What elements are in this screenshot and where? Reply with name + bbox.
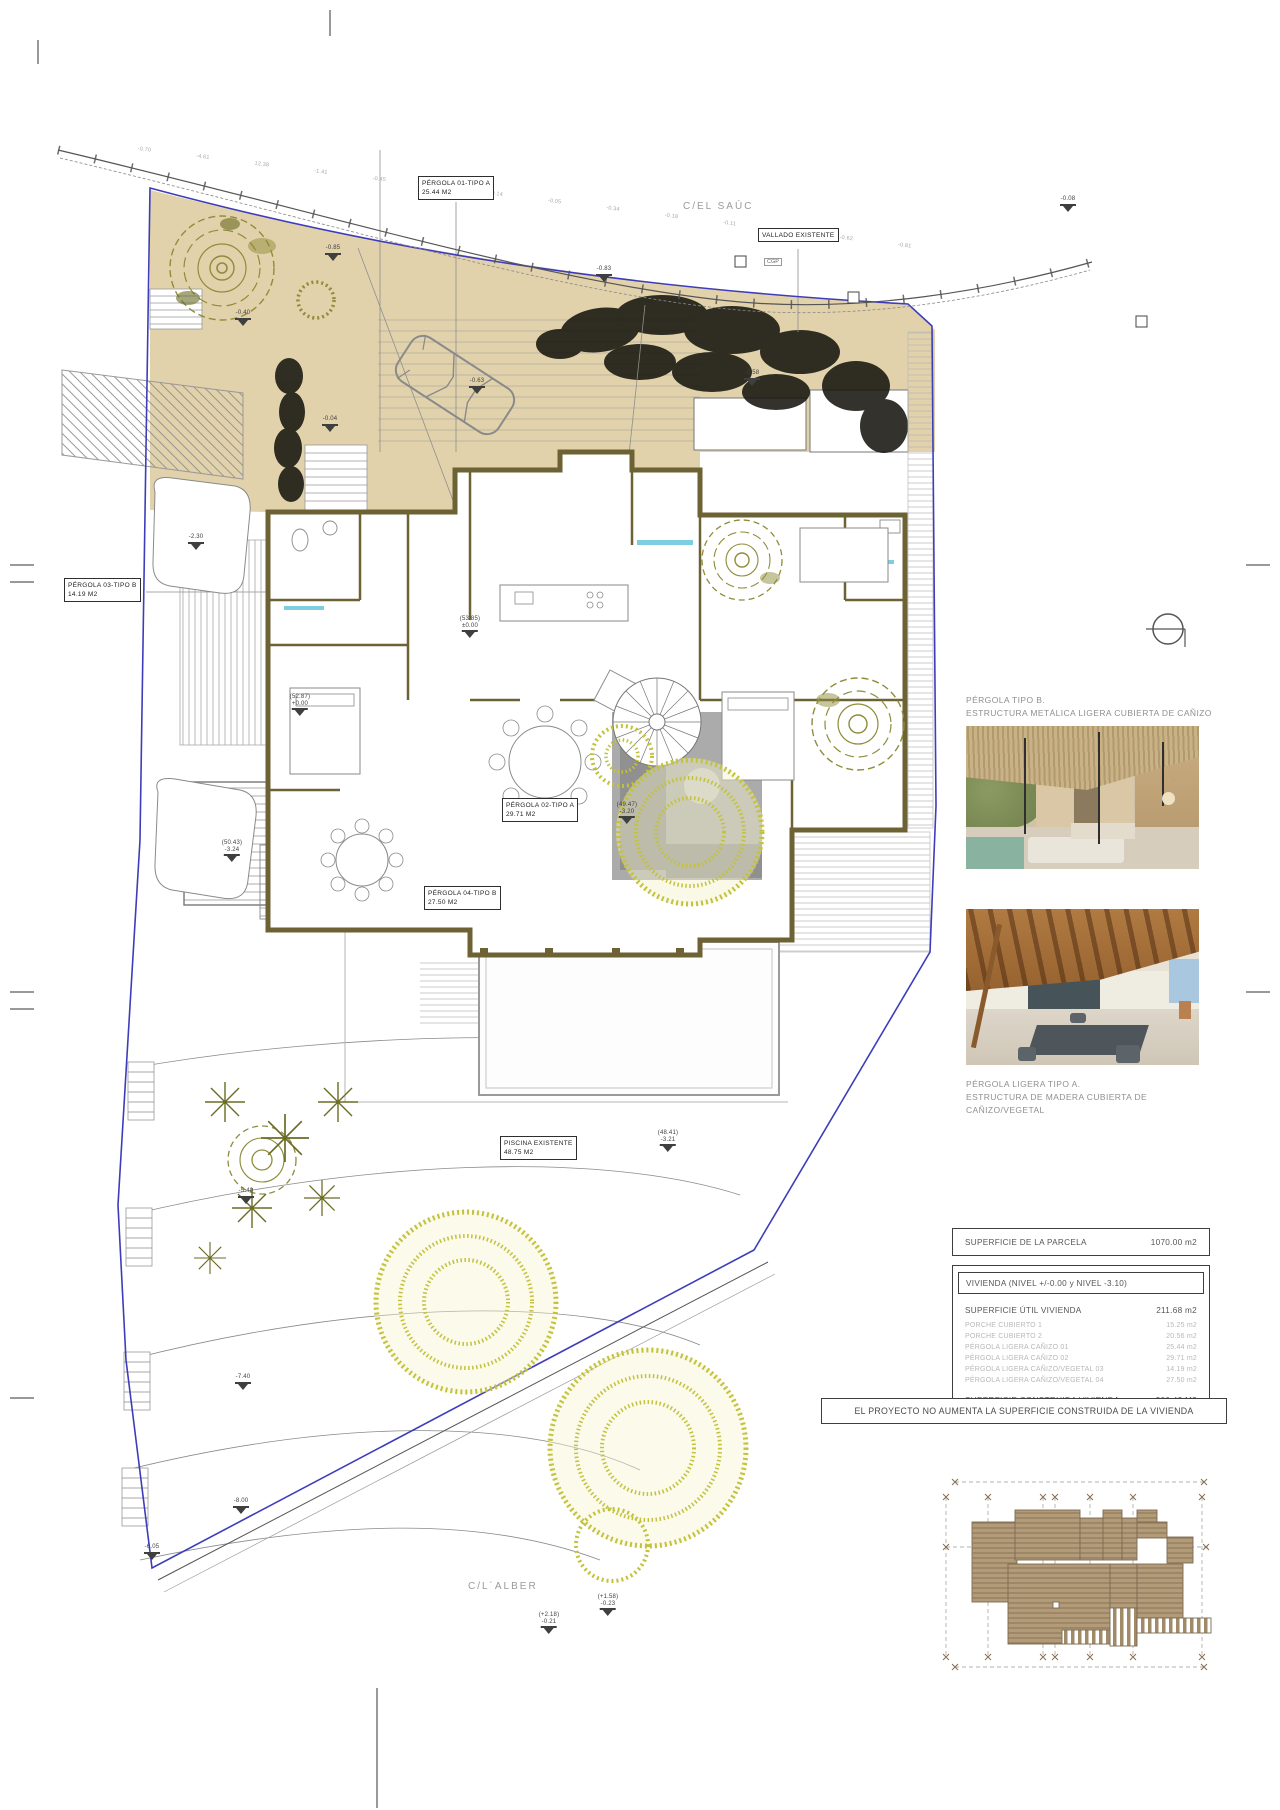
- photo-sofa: [1071, 823, 1135, 839]
- roof-footprint: [972, 1510, 1211, 1646]
- elevation-marker: -0.40: [235, 310, 251, 320]
- parcela-label: SUPERFICIE DE LA PARCELA: [965, 1238, 1087, 1247]
- cgp-label: CGP: [764, 258, 782, 266]
- parcela-value: 1070.00 m2: [1151, 1238, 1197, 1247]
- photo-sofa: [1028, 837, 1124, 863]
- elevation-marker: -5.40: [238, 1188, 254, 1198]
- label-pergola-03: PÉRGOLA 03-TIPO B14.19 m2: [64, 578, 141, 602]
- elevation-marker: (+1.58)-0.23: [598, 1594, 619, 1610]
- label-pergola-04: PÉRGOLA 04-TIPO B27.50 m2: [424, 886, 501, 910]
- pool: [479, 942, 779, 1095]
- table-row: PÉRGOLA LIGERA CAÑIZO 0125.44 m2: [953, 1342, 1209, 1353]
- street-label-bottom: C/L´ALBER: [468, 1581, 538, 1592]
- photo-pergola-tipo-b: [966, 726, 1199, 869]
- photo-door: [1074, 784, 1100, 828]
- elevation-marker: (49.47)-3.20: [617, 802, 637, 818]
- label-piscina-existente: PISCINA EXISTENTE48.75 m2: [500, 1136, 577, 1160]
- elevation-marker: -0.63: [469, 378, 485, 388]
- label-vallado-existente: VALLADO EXISTENTE: [758, 228, 839, 242]
- table-row: PÉRGOLA LIGERA CAÑIZO/VEGETAL 0427.50 m2: [953, 1375, 1209, 1386]
- table-row: PÉRGOLA LIGERA CAÑIZO/VEGETAL 0314.19 m2: [953, 1364, 1209, 1375]
- elevation-marker: -0.83: [596, 266, 612, 276]
- photo-metal-post: [1024, 738, 1026, 834]
- elevation-marker: (52.87)+0.00: [290, 694, 310, 710]
- photo-chair: [1018, 1047, 1036, 1061]
- photo-lamp: [1162, 792, 1175, 805]
- util-row: SUPERFICIE ÚTIL VIVIENDA211.68 m2: [953, 1301, 1209, 1320]
- vivienda-header: VIVIENDA (NIVEL +/-0.00 y NIVEL -3.10): [958, 1272, 1204, 1294]
- elevation-marker: -0.85: [325, 245, 341, 255]
- north-symbol: [1146, 607, 1194, 655]
- photo-sky: [1169, 959, 1199, 1003]
- roof-plan: [938, 1452, 1218, 1682]
- drawing-sheet: C/EL SAÚC C/L´ALBER -0.70-4.6112.38 -1.4…: [0, 0, 1280, 1810]
- label-pergola-02: PÉRGOLA 02-TIPO A29.71 m2: [502, 798, 578, 822]
- elevation-marker: -7.40: [235, 1374, 251, 1384]
- area-table: SUPERFICIE DE LA PARCELA 1070.00 m2 VIVI…: [952, 1228, 1210, 1418]
- photo-chair: [1070, 1013, 1086, 1023]
- elevation-marker: (+2.18)-0.21: [539, 1612, 560, 1628]
- elevation-marker: -0.04: [322, 416, 338, 426]
- elevation-marker: -0.08: [1060, 196, 1076, 206]
- elevation-marker: -6.05: [144, 1544, 160, 1554]
- elevation-marker: -0.58: [744, 370, 760, 380]
- elevation-marker: (50.43)-3.24: [222, 840, 242, 856]
- photo-metal-post: [1098, 732, 1100, 844]
- elevation-marker: -8.00: [233, 1498, 249, 1508]
- project-note-banner: EL PROYECTO NO AUMENTA LA SUPERFICIE CON…: [821, 1398, 1227, 1424]
- table-parcela-row: SUPERFICIE DE LA PARCELA 1070.00 m2: [952, 1228, 1210, 1256]
- elevation-marker: (48.41)-3.21: [658, 1130, 678, 1146]
- caption-pergola-a: PÉRGOLA LIGERA TIPO A.ESTRUCTURA DE MADE…: [966, 1078, 1218, 1118]
- table-row: PORCHE CUBIERTO 220.56 m2: [953, 1331, 1209, 1342]
- table-row: PÉRGOLA LIGERA CAÑIZO 0229.71 m2: [953, 1353, 1209, 1364]
- photo-chair: [1116, 1045, 1140, 1063]
- table-vivienda-box: VIVIENDA (NIVEL +/-0.00 y NIVEL -3.10) S…: [952, 1265, 1210, 1418]
- caption-pergola-b: PÉRGOLA TIPO B.ESTRUCTURA METÁLICA LIGER…: [966, 694, 1218, 720]
- table-row: PORCHE CUBIERTO 115.25 m2: [953, 1320, 1209, 1331]
- elevation-marker: (53.85)±0.00: [460, 616, 480, 632]
- photo-pergola-tipo-a: [966, 909, 1199, 1065]
- spiral-stair: [613, 678, 701, 766]
- elevation-marker: -2.30: [188, 534, 204, 544]
- label-pergola-01: PÉRGOLA 01-TIPO A25.44 m2: [418, 176, 494, 200]
- street-label-top: C/EL SAÚC: [683, 201, 753, 212]
- photo-pool: [966, 837, 1024, 869]
- photo-planter: [1179, 1001, 1191, 1019]
